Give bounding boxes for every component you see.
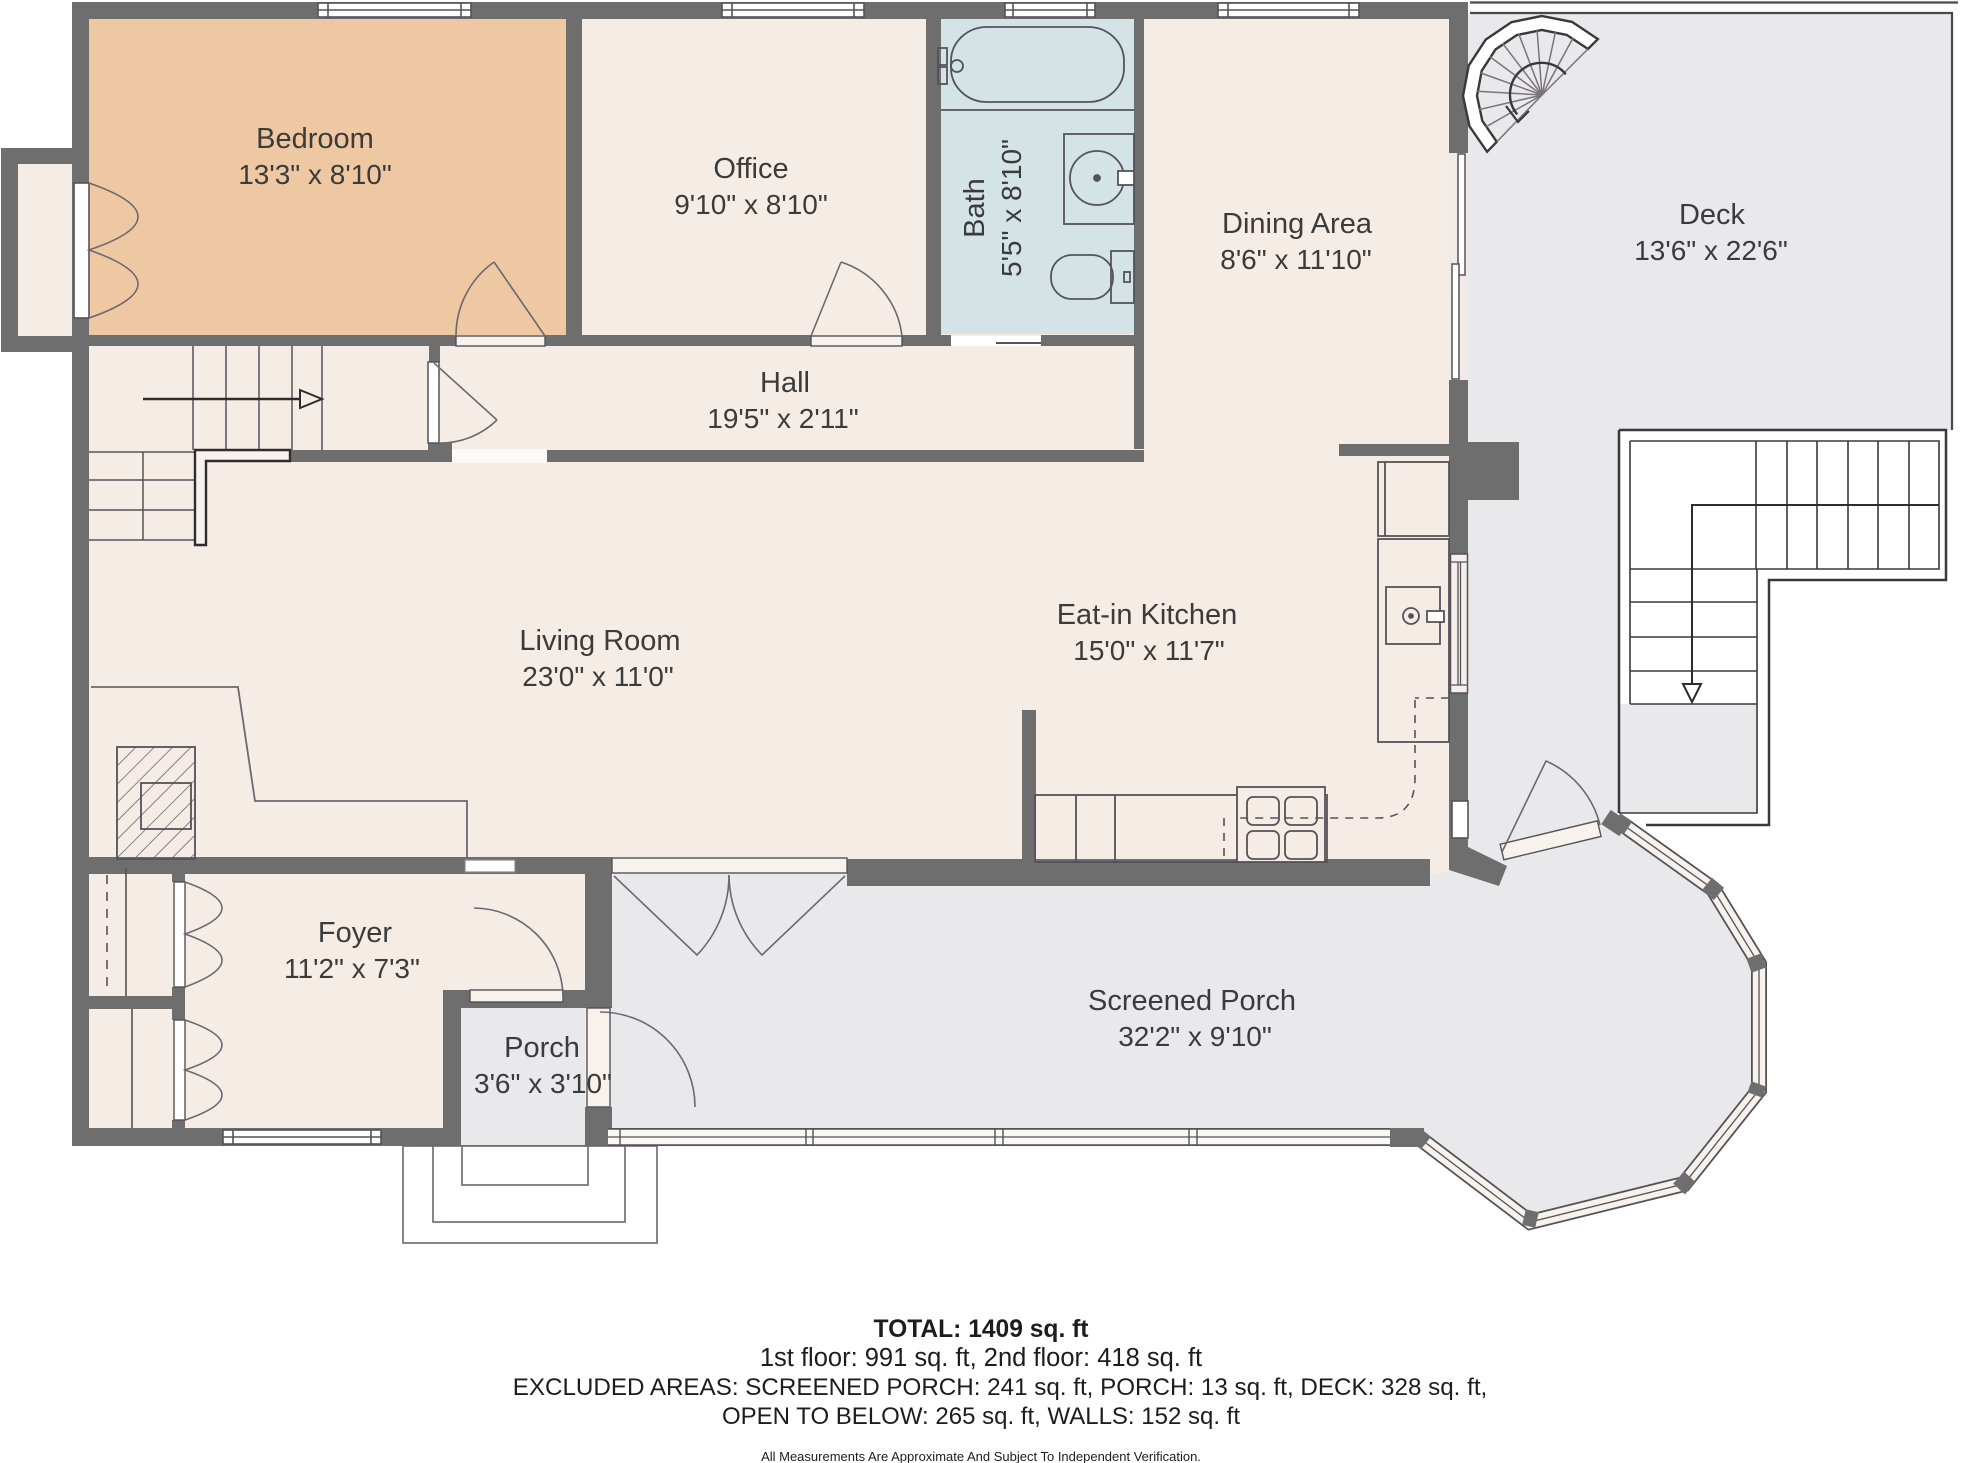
- svg-text:EXCLUDED AREAS: SCREENED PORCH: EXCLUDED AREAS: SCREENED PORCH: 241 sq. …: [513, 1374, 1488, 1401]
- svg-text:8'6" x 11'10": 8'6" x 11'10": [1220, 244, 1371, 275]
- svg-text:OPEN TO BELOW: 265 sq. ft, WAL: OPEN TO BELOW: 265 sq. ft, WALLS: 152 sq…: [722, 1403, 1240, 1430]
- svg-text:1st floor: 991 sq. ft, 2nd flo: 1st floor: 991 sq. ft, 2nd floor: 418 sq…: [760, 1344, 1202, 1372]
- svg-text:11'2" x 7'3": 11'2" x 7'3": [284, 953, 420, 984]
- svg-text:Living Room: Living Room: [519, 625, 680, 657]
- svg-text:15'0" x 11'7": 15'0" x 11'7": [1073, 635, 1224, 666]
- svg-text:Bath: Bath: [959, 178, 991, 238]
- svg-text:Porch: Porch: [504, 1032, 580, 1064]
- svg-text:Office: Office: [713, 153, 788, 185]
- svg-text:TOTAL: 1409 sq. ft: TOTAL: 1409 sq. ft: [873, 1316, 1088, 1343]
- svg-text:Hall: Hall: [760, 367, 810, 399]
- svg-text:5'5" x 8'10": 5'5" x 8'10": [996, 139, 1027, 277]
- svg-text:3'6" x 3'10": 3'6" x 3'10": [474, 1068, 612, 1099]
- svg-text:Bedroom: Bedroom: [256, 123, 374, 155]
- svg-text:All Measurements Are Approxima: All Measurements Are Approximate And Sub…: [761, 1449, 1201, 1463]
- svg-text:13'3" x 8'10": 13'3" x 8'10": [238, 159, 392, 190]
- svg-text:Deck: Deck: [1679, 199, 1746, 231]
- svg-text:Foyer: Foyer: [318, 917, 392, 949]
- svg-text:Dining Area: Dining Area: [1222, 208, 1373, 240]
- svg-text:19'5" x 2'11": 19'5" x 2'11": [707, 403, 858, 434]
- svg-text:13'6" x 22'6": 13'6" x 22'6": [1634, 235, 1788, 266]
- svg-text:Eat-in Kitchen: Eat-in Kitchen: [1057, 599, 1238, 631]
- svg-text:9'10" x 8'10": 9'10" x 8'10": [674, 189, 828, 220]
- svg-text:Screened Porch: Screened Porch: [1088, 985, 1296, 1017]
- svg-text:32'2" x 9'10": 32'2" x 9'10": [1118, 1021, 1272, 1052]
- svg-text:23'0" x 11'0": 23'0" x 11'0": [522, 661, 673, 692]
